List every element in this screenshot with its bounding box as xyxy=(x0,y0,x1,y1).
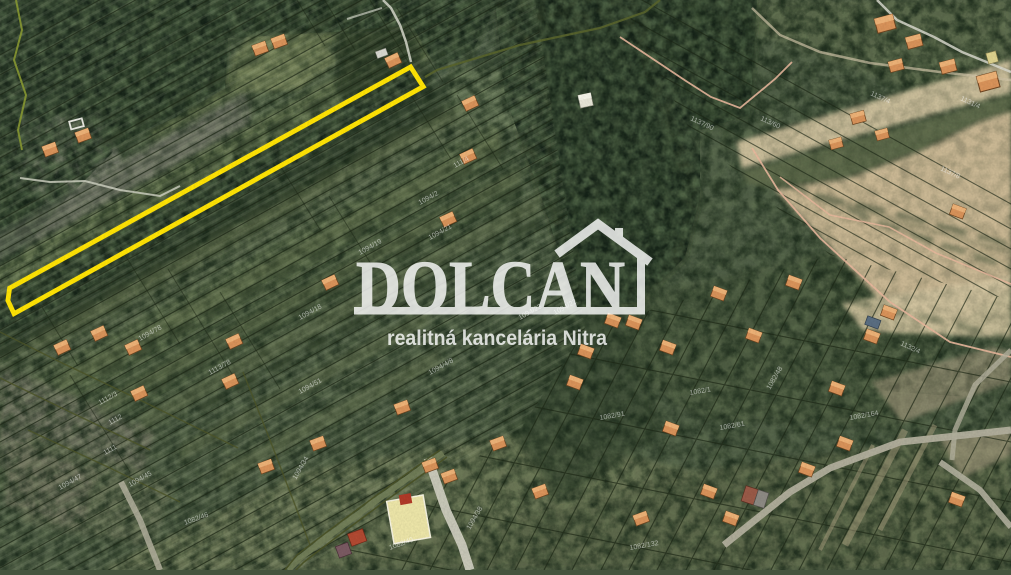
svg-text:realitná kancelária Nitra: realitná kancelária Nitra xyxy=(387,326,608,350)
svg-text:DOLCAN: DOLCAN xyxy=(356,246,625,327)
